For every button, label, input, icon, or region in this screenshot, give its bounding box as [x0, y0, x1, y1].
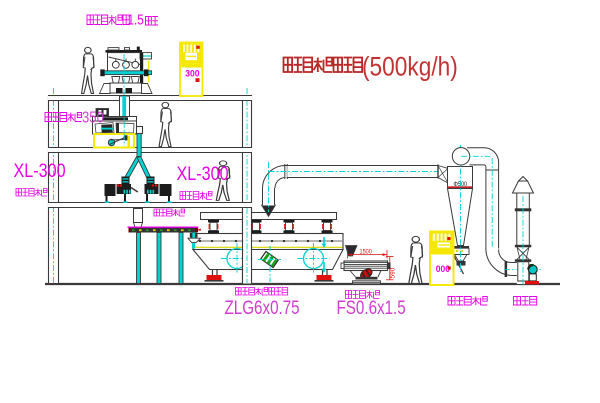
svg-text:350: 350: [82, 109, 104, 126]
svg-text:1500: 1500: [360, 249, 373, 255]
svg-text:590: 590: [390, 267, 397, 278]
svg-text:XL-300: XL-300: [14, 160, 66, 182]
svg-text:ZLG6x0.75: ZLG6x0.75: [225, 296, 300, 318]
svg-text:(500kg/h): (500kg/h): [362, 52, 458, 82]
svg-text:FS0.6x1.5: FS0.6x1.5: [337, 296, 406, 318]
svg-text:300: 300: [185, 68, 199, 79]
svg-text:1.5: 1.5: [128, 11, 144, 28]
svg-text:XL-300: XL-300: [177, 163, 229, 185]
